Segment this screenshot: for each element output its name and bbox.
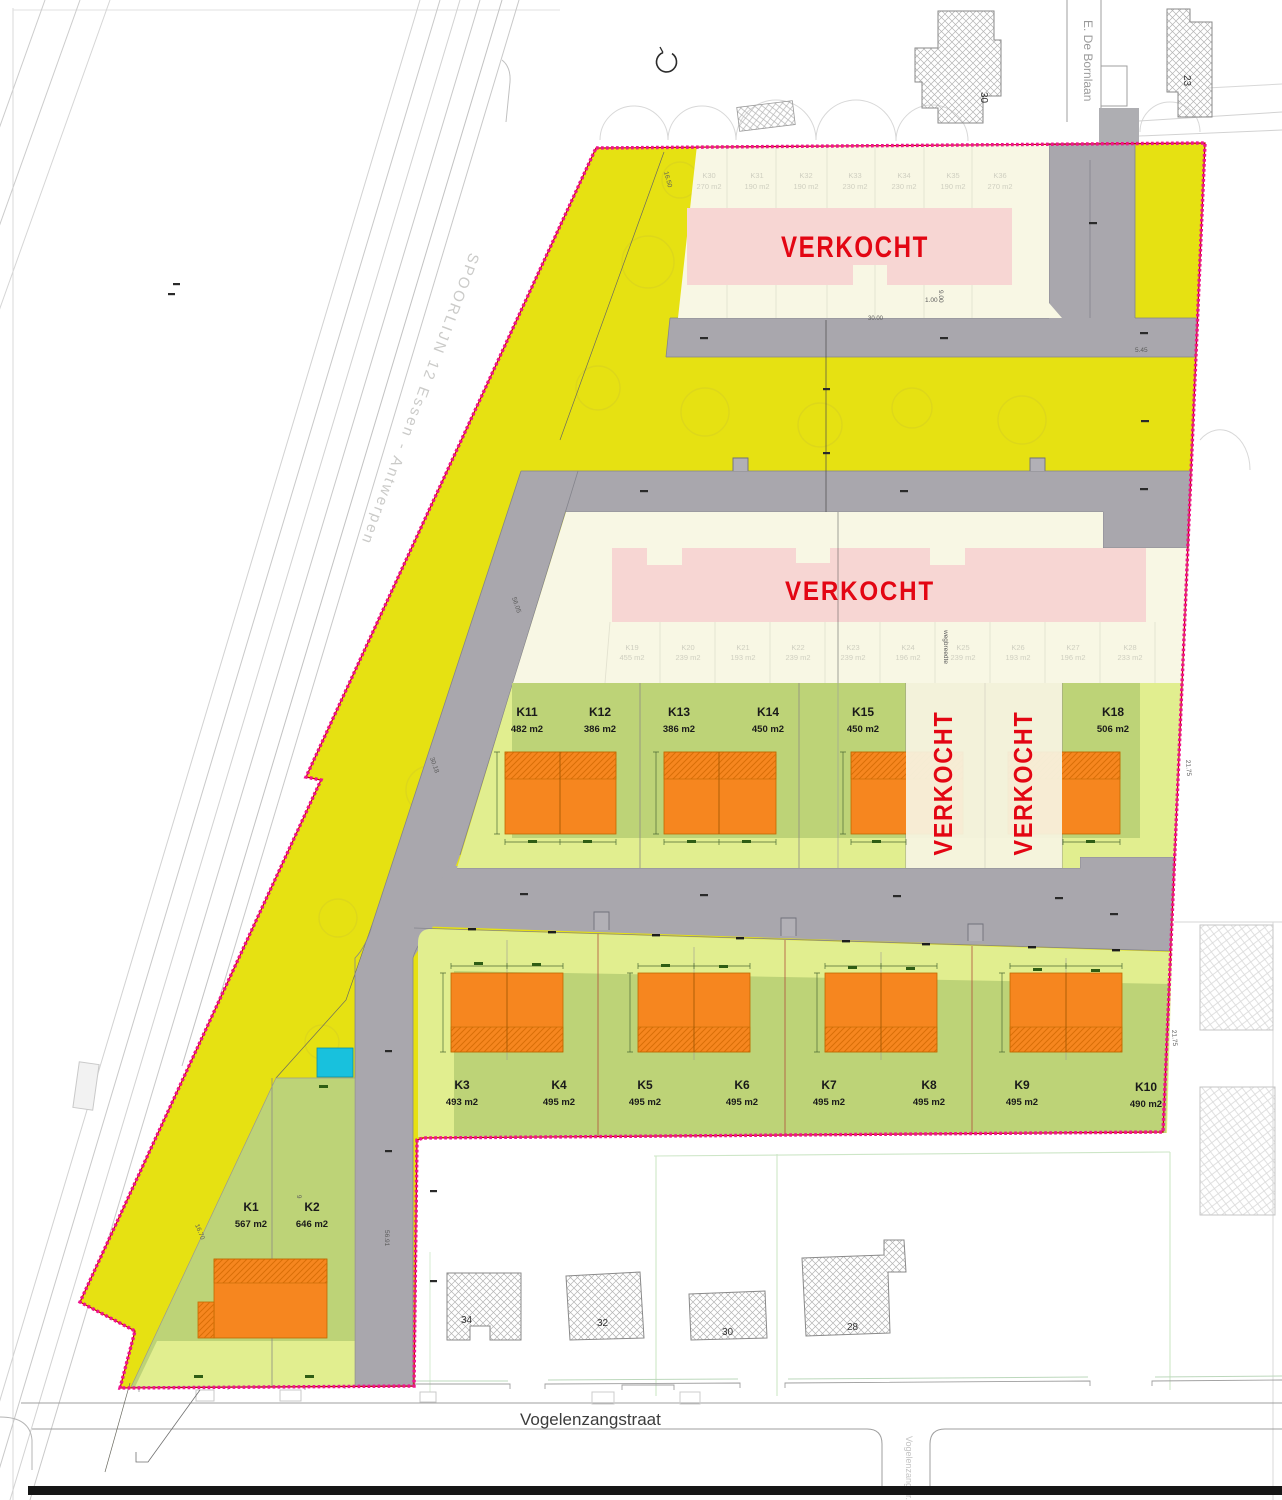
svg-text:450 m2: 450 m2 bbox=[752, 724, 784, 735]
svg-text:VERKOCHT: VERKOCHT bbox=[781, 231, 929, 264]
svg-text:K15: K15 bbox=[852, 705, 874, 719]
svg-text:K7: K7 bbox=[821, 1078, 837, 1092]
svg-text:230 m2: 230 m2 bbox=[891, 182, 916, 191]
svg-text:K27: K27 bbox=[1066, 643, 1079, 652]
svg-text:K30: K30 bbox=[702, 171, 715, 180]
svg-text:wegbreedte: wegbreedte bbox=[942, 629, 949, 664]
svg-text:K19: K19 bbox=[625, 643, 638, 652]
svg-text:1.00: 1.00 bbox=[925, 297, 938, 304]
svg-text:190 m2: 190 m2 bbox=[940, 182, 965, 191]
svg-text:32: 32 bbox=[597, 1318, 609, 1329]
svg-text:K10: K10 bbox=[1135, 1080, 1157, 1094]
svg-text:K28: K28 bbox=[1123, 643, 1136, 652]
svg-text:239 m2: 239 m2 bbox=[785, 653, 810, 662]
svg-text:K35: K35 bbox=[946, 171, 959, 180]
svg-text:K2: K2 bbox=[304, 1200, 320, 1214]
svg-text:482 m2: 482 m2 bbox=[511, 724, 543, 735]
svg-text:K12: K12 bbox=[589, 705, 611, 719]
svg-text:K32: K32 bbox=[799, 171, 812, 180]
svg-text:493 m2: 493 m2 bbox=[446, 1097, 478, 1108]
svg-text:495 m2: 495 m2 bbox=[726, 1097, 758, 1108]
svg-text:21.75: 21.75 bbox=[1170, 1030, 1178, 1047]
svg-text:K22: K22 bbox=[791, 643, 804, 652]
svg-text:193 m2: 193 m2 bbox=[730, 653, 755, 662]
svg-text:K36: K36 bbox=[993, 171, 1006, 180]
svg-text:495 m2: 495 m2 bbox=[1006, 1097, 1038, 1108]
svg-text:K23: K23 bbox=[846, 643, 859, 652]
svg-text:K8: K8 bbox=[921, 1078, 937, 1092]
svg-text:30.00: 30.00 bbox=[868, 316, 884, 322]
svg-text:23: 23 bbox=[1181, 75, 1192, 87]
svg-text:567 m2: 567 m2 bbox=[235, 1219, 267, 1230]
svg-text:455 m2: 455 m2 bbox=[619, 653, 644, 662]
svg-text:193 m2: 193 m2 bbox=[1005, 653, 1030, 662]
svg-text:239 m2: 239 m2 bbox=[675, 653, 700, 662]
svg-text:VERKOCHT: VERKOCHT bbox=[785, 576, 935, 606]
svg-text:K24: K24 bbox=[901, 643, 914, 652]
svg-text:28: 28 bbox=[847, 1322, 859, 1333]
svg-text:495 m2: 495 m2 bbox=[813, 1097, 845, 1108]
svg-text:K33: K33 bbox=[848, 171, 861, 180]
svg-text:190 m2: 190 m2 bbox=[793, 182, 818, 191]
svg-text:K13: K13 bbox=[668, 705, 690, 719]
svg-text:K4: K4 bbox=[551, 1078, 567, 1092]
svg-text:495 m2: 495 m2 bbox=[629, 1097, 661, 1108]
svg-text:K25: K25 bbox=[956, 643, 969, 652]
svg-text:K5: K5 bbox=[637, 1078, 653, 1092]
svg-text:K11: K11 bbox=[516, 705, 538, 719]
svg-text:K14: K14 bbox=[757, 705, 779, 719]
svg-text:56.91: 56.91 bbox=[383, 1230, 390, 1247]
svg-text:5.45: 5.45 bbox=[1135, 347, 1148, 354]
svg-text:386 m2: 386 m2 bbox=[584, 724, 616, 735]
svg-text:196 m2: 196 m2 bbox=[895, 653, 920, 662]
svg-text:495 m2: 495 m2 bbox=[543, 1097, 575, 1108]
svg-text:233 m2: 233 m2 bbox=[1117, 653, 1142, 662]
svg-text:386 m2: 386 m2 bbox=[663, 724, 695, 735]
svg-text:450 m2: 450 m2 bbox=[847, 724, 879, 735]
svg-text:239 m2: 239 m2 bbox=[840, 653, 865, 662]
svg-text:30: 30 bbox=[722, 1327, 734, 1338]
svg-text:21.75: 21.75 bbox=[1184, 760, 1192, 777]
svg-text:270 m2: 270 m2 bbox=[987, 182, 1012, 191]
svg-text:VERKOCHT: VERKOCHT bbox=[928, 711, 958, 856]
svg-text:K3: K3 bbox=[454, 1078, 470, 1092]
svg-text:506 m2: 506 m2 bbox=[1097, 724, 1129, 735]
svg-text:230 m2: 230 m2 bbox=[842, 182, 867, 191]
svg-text:K18: K18 bbox=[1102, 705, 1124, 719]
svg-text:E. De Bornlaan: E. De Bornlaan bbox=[1081, 20, 1095, 101]
svg-text:34: 34 bbox=[461, 1315, 473, 1326]
svg-text:K21: K21 bbox=[736, 643, 749, 652]
svg-text:196 m2: 196 m2 bbox=[1060, 653, 1085, 662]
svg-text:30: 30 bbox=[978, 92, 989, 104]
svg-text:K1: K1 bbox=[243, 1200, 259, 1214]
svg-text:VERKOCHT: VERKOCHT bbox=[1008, 711, 1038, 856]
svg-text:270 m2: 270 m2 bbox=[696, 182, 721, 191]
svg-text:Vogelenzangstraat: Vogelenzangstraat bbox=[520, 1410, 661, 1429]
svg-text:K34: K34 bbox=[897, 171, 910, 180]
svg-text:K6: K6 bbox=[734, 1078, 750, 1092]
svg-text:K31: K31 bbox=[750, 171, 763, 180]
svg-text:239 m2: 239 m2 bbox=[950, 653, 975, 662]
svg-text:490 m2: 490 m2 bbox=[1130, 1099, 1162, 1110]
svg-text:646 m2: 646 m2 bbox=[296, 1219, 328, 1230]
svg-text:9.00: 9.00 bbox=[937, 290, 944, 303]
svg-text:K9: K9 bbox=[1014, 1078, 1030, 1092]
svg-text:495 m2: 495 m2 bbox=[913, 1097, 945, 1108]
svg-text:190 m2: 190 m2 bbox=[744, 182, 769, 191]
svg-text:K20: K20 bbox=[681, 643, 694, 652]
svg-text:K26: K26 bbox=[1011, 643, 1024, 652]
